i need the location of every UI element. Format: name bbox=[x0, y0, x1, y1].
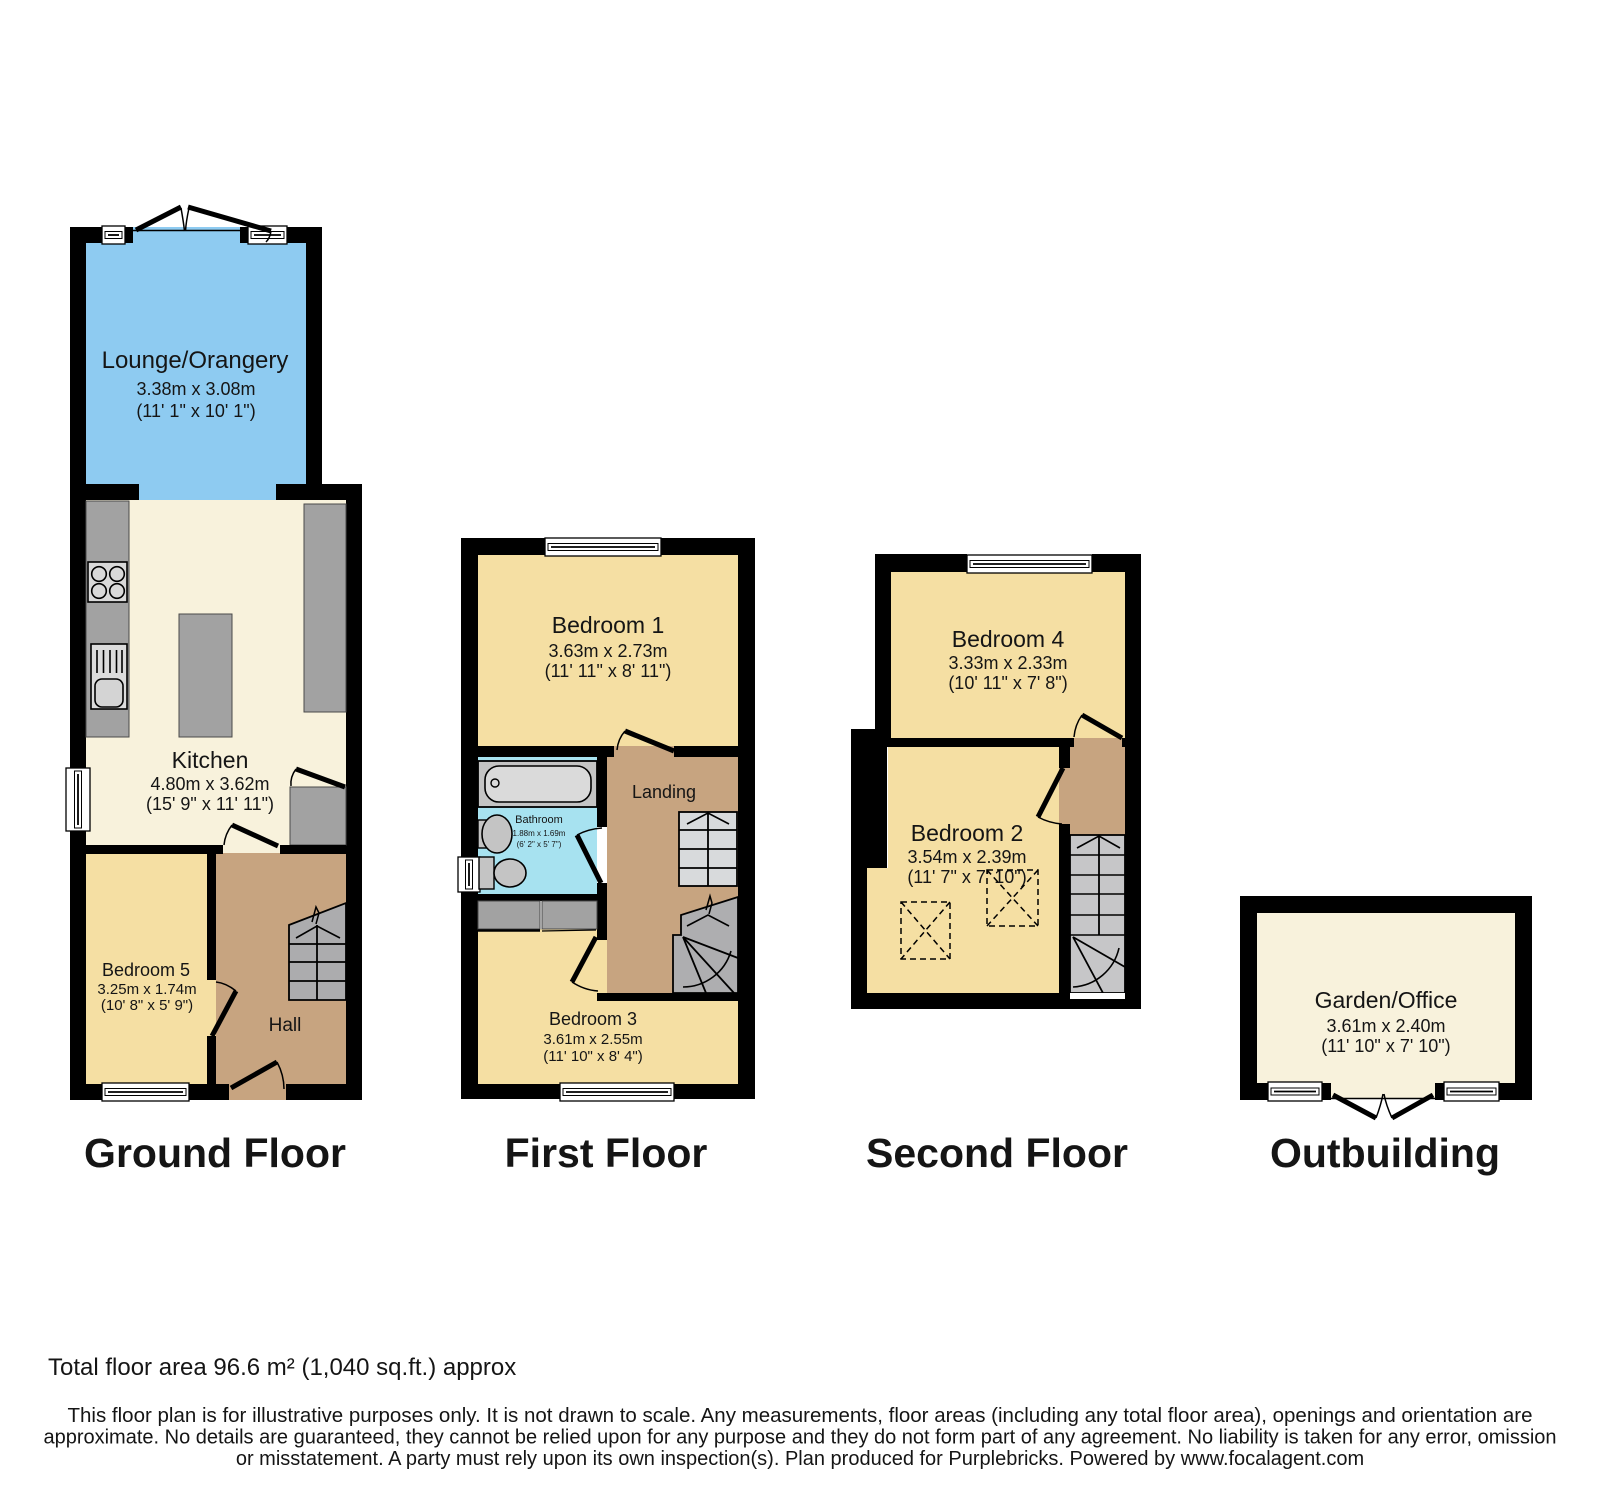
svg-text:4.80m x 3.62m: 4.80m x 3.62m bbox=[150, 774, 269, 794]
svg-text:(10' 11" x 7' 8"): (10' 11" x 7' 8") bbox=[948, 673, 1067, 693]
svg-text:Bedroom 4: Bedroom 4 bbox=[952, 626, 1065, 652]
svg-text:Garden/Office: Garden/Office bbox=[1315, 987, 1458, 1013]
svg-text:3.63m x 2.73m: 3.63m x 2.73m bbox=[548, 641, 667, 661]
svg-text:Landing: Landing bbox=[632, 782, 696, 802]
svg-text:Ground Floor: Ground Floor bbox=[84, 1130, 346, 1176]
svg-text:First Floor: First Floor bbox=[505, 1130, 708, 1176]
svg-text:3.54m x 2.39m: 3.54m x 2.39m bbox=[907, 847, 1026, 867]
svg-text:3.25m x 1.74m: 3.25m x 1.74m bbox=[97, 981, 196, 998]
svg-text:Lounge/Orangery: Lounge/Orangery bbox=[102, 347, 289, 374]
svg-text:Second Floor: Second Floor bbox=[866, 1130, 1128, 1176]
svg-text:or misstatement. A party must: or misstatement. A party must rely upon … bbox=[236, 1448, 1364, 1470]
svg-text:Bathroom: Bathroom bbox=[515, 814, 563, 826]
svg-text:Outbuilding: Outbuilding bbox=[1270, 1130, 1500, 1176]
svg-text:3.33m x 2.33m: 3.33m x 2.33m bbox=[948, 653, 1067, 673]
svg-text:3.61m x 2.40m: 3.61m x 2.40m bbox=[1326, 1016, 1445, 1036]
svg-text:(11' 11" x 8' 11"): (11' 11" x 8' 11") bbox=[545, 661, 672, 681]
svg-text:Kitchen: Kitchen bbox=[172, 747, 249, 773]
svg-text:(15' 9" x 11' 11"): (15' 9" x 11' 11") bbox=[146, 794, 274, 814]
svg-text:(11' 10" x 7' 10"): (11' 10" x 7' 10") bbox=[1321, 1036, 1450, 1056]
svg-text:(10' 8" x 5' 9"): (10' 8" x 5' 9") bbox=[101, 997, 193, 1014]
svg-text:(11' 1" x 10' 1"): (11' 1" x 10' 1") bbox=[136, 401, 255, 421]
svg-text:1.88m x 1.69m: 1.88m x 1.69m bbox=[513, 829, 566, 838]
svg-text:Total floor area 96.6 m² (1,04: Total floor area 96.6 m² (1,040 sq.ft.) … bbox=[48, 1354, 516, 1381]
svg-text:(6' 2" x 5' 7"): (6' 2" x 5' 7") bbox=[517, 840, 562, 849]
svg-text:Hall: Hall bbox=[269, 1015, 302, 1036]
svg-text:Bedroom 5: Bedroom 5 bbox=[102, 960, 190, 980]
svg-text:approximate. No details are gu: approximate. No details are guaranteed, … bbox=[43, 1427, 1556, 1449]
svg-text:(11' 10" x 8' 4"): (11' 10" x 8' 4") bbox=[543, 1048, 642, 1065]
svg-text:This floor plan is for illustr: This floor plan is for illustrative purp… bbox=[68, 1404, 1533, 1427]
svg-text:3.38m x 3.08m: 3.38m x 3.08m bbox=[136, 379, 255, 399]
svg-text:Bedroom 1: Bedroom 1 bbox=[552, 612, 665, 638]
svg-text:Bedroom 3: Bedroom 3 bbox=[549, 1009, 637, 1029]
svg-text:3.61m x 2.55m: 3.61m x 2.55m bbox=[543, 1031, 642, 1048]
svg-text:Bedroom 2: Bedroom 2 bbox=[911, 820, 1024, 846]
